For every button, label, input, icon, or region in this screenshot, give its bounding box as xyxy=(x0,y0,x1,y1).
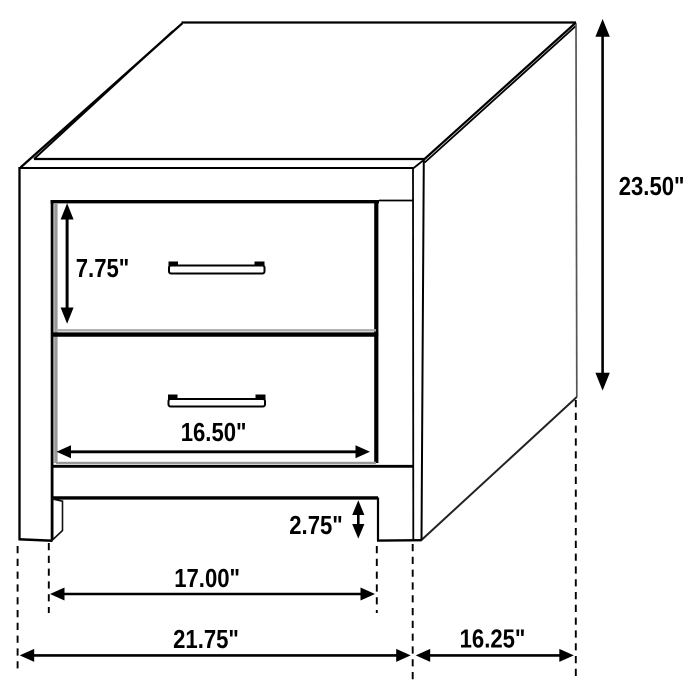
svg-text:17.00": 17.00" xyxy=(174,565,240,594)
svg-text:7.75": 7.75" xyxy=(76,254,129,283)
svg-text:23.50": 23.50" xyxy=(619,173,685,202)
svg-text:2.75": 2.75" xyxy=(289,511,342,540)
svg-text:21.75": 21.75" xyxy=(173,625,239,654)
svg-text:16.25": 16.25" xyxy=(460,625,526,654)
svg-text:16.50": 16.50" xyxy=(181,418,247,447)
